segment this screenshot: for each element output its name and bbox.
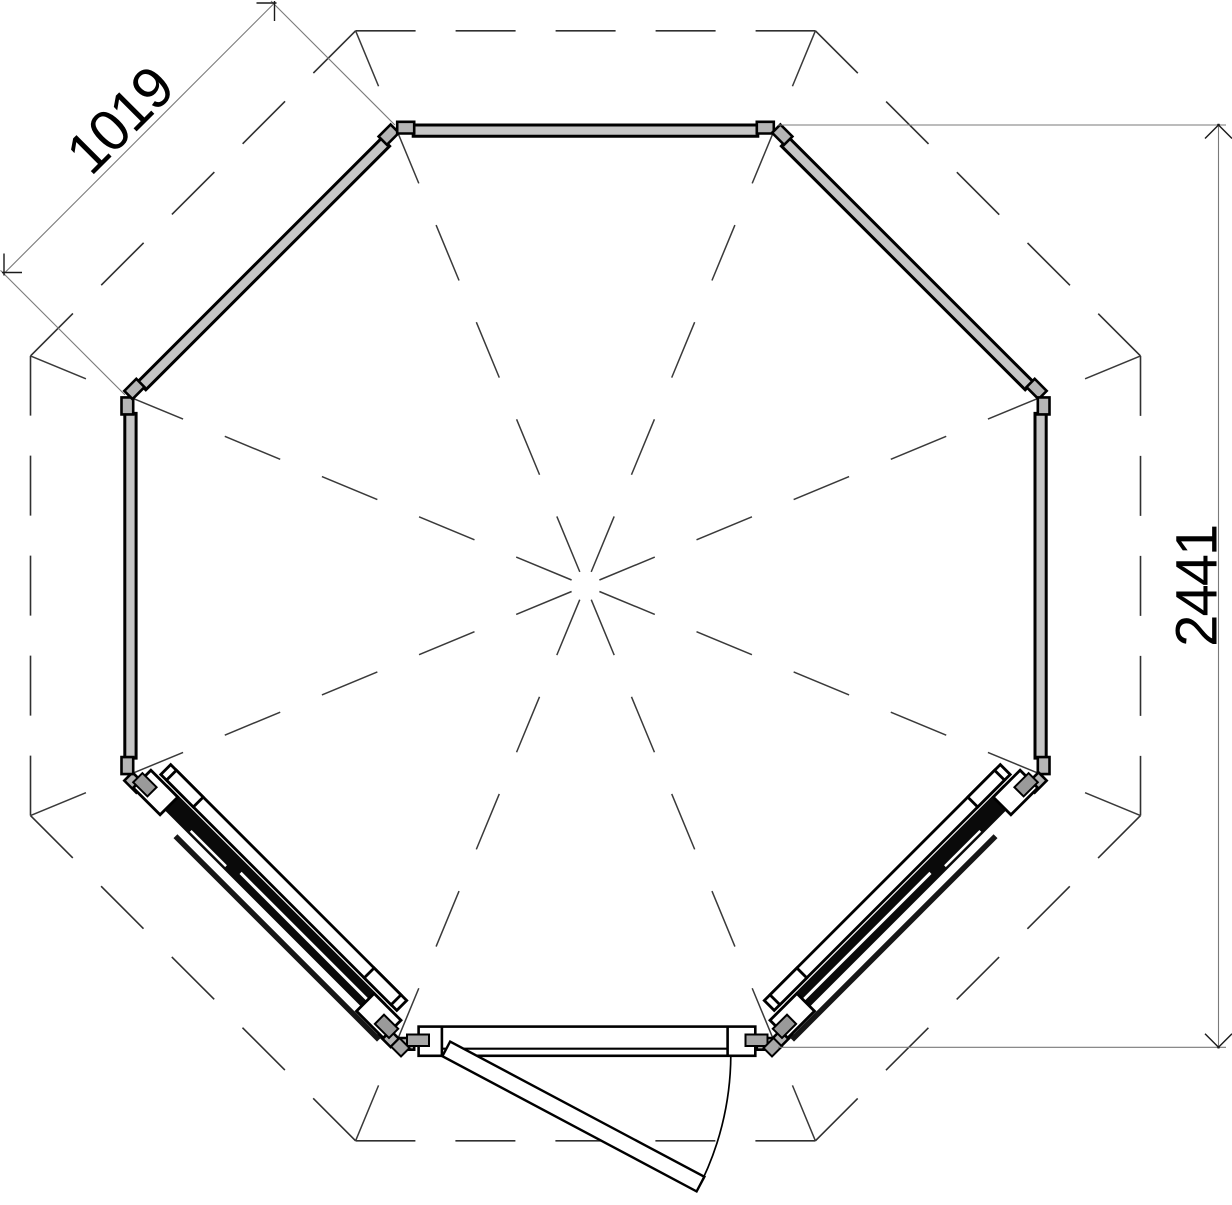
svg-text:2441: 2441	[1165, 526, 1230, 647]
svg-text:1019: 1019	[54, 55, 186, 187]
